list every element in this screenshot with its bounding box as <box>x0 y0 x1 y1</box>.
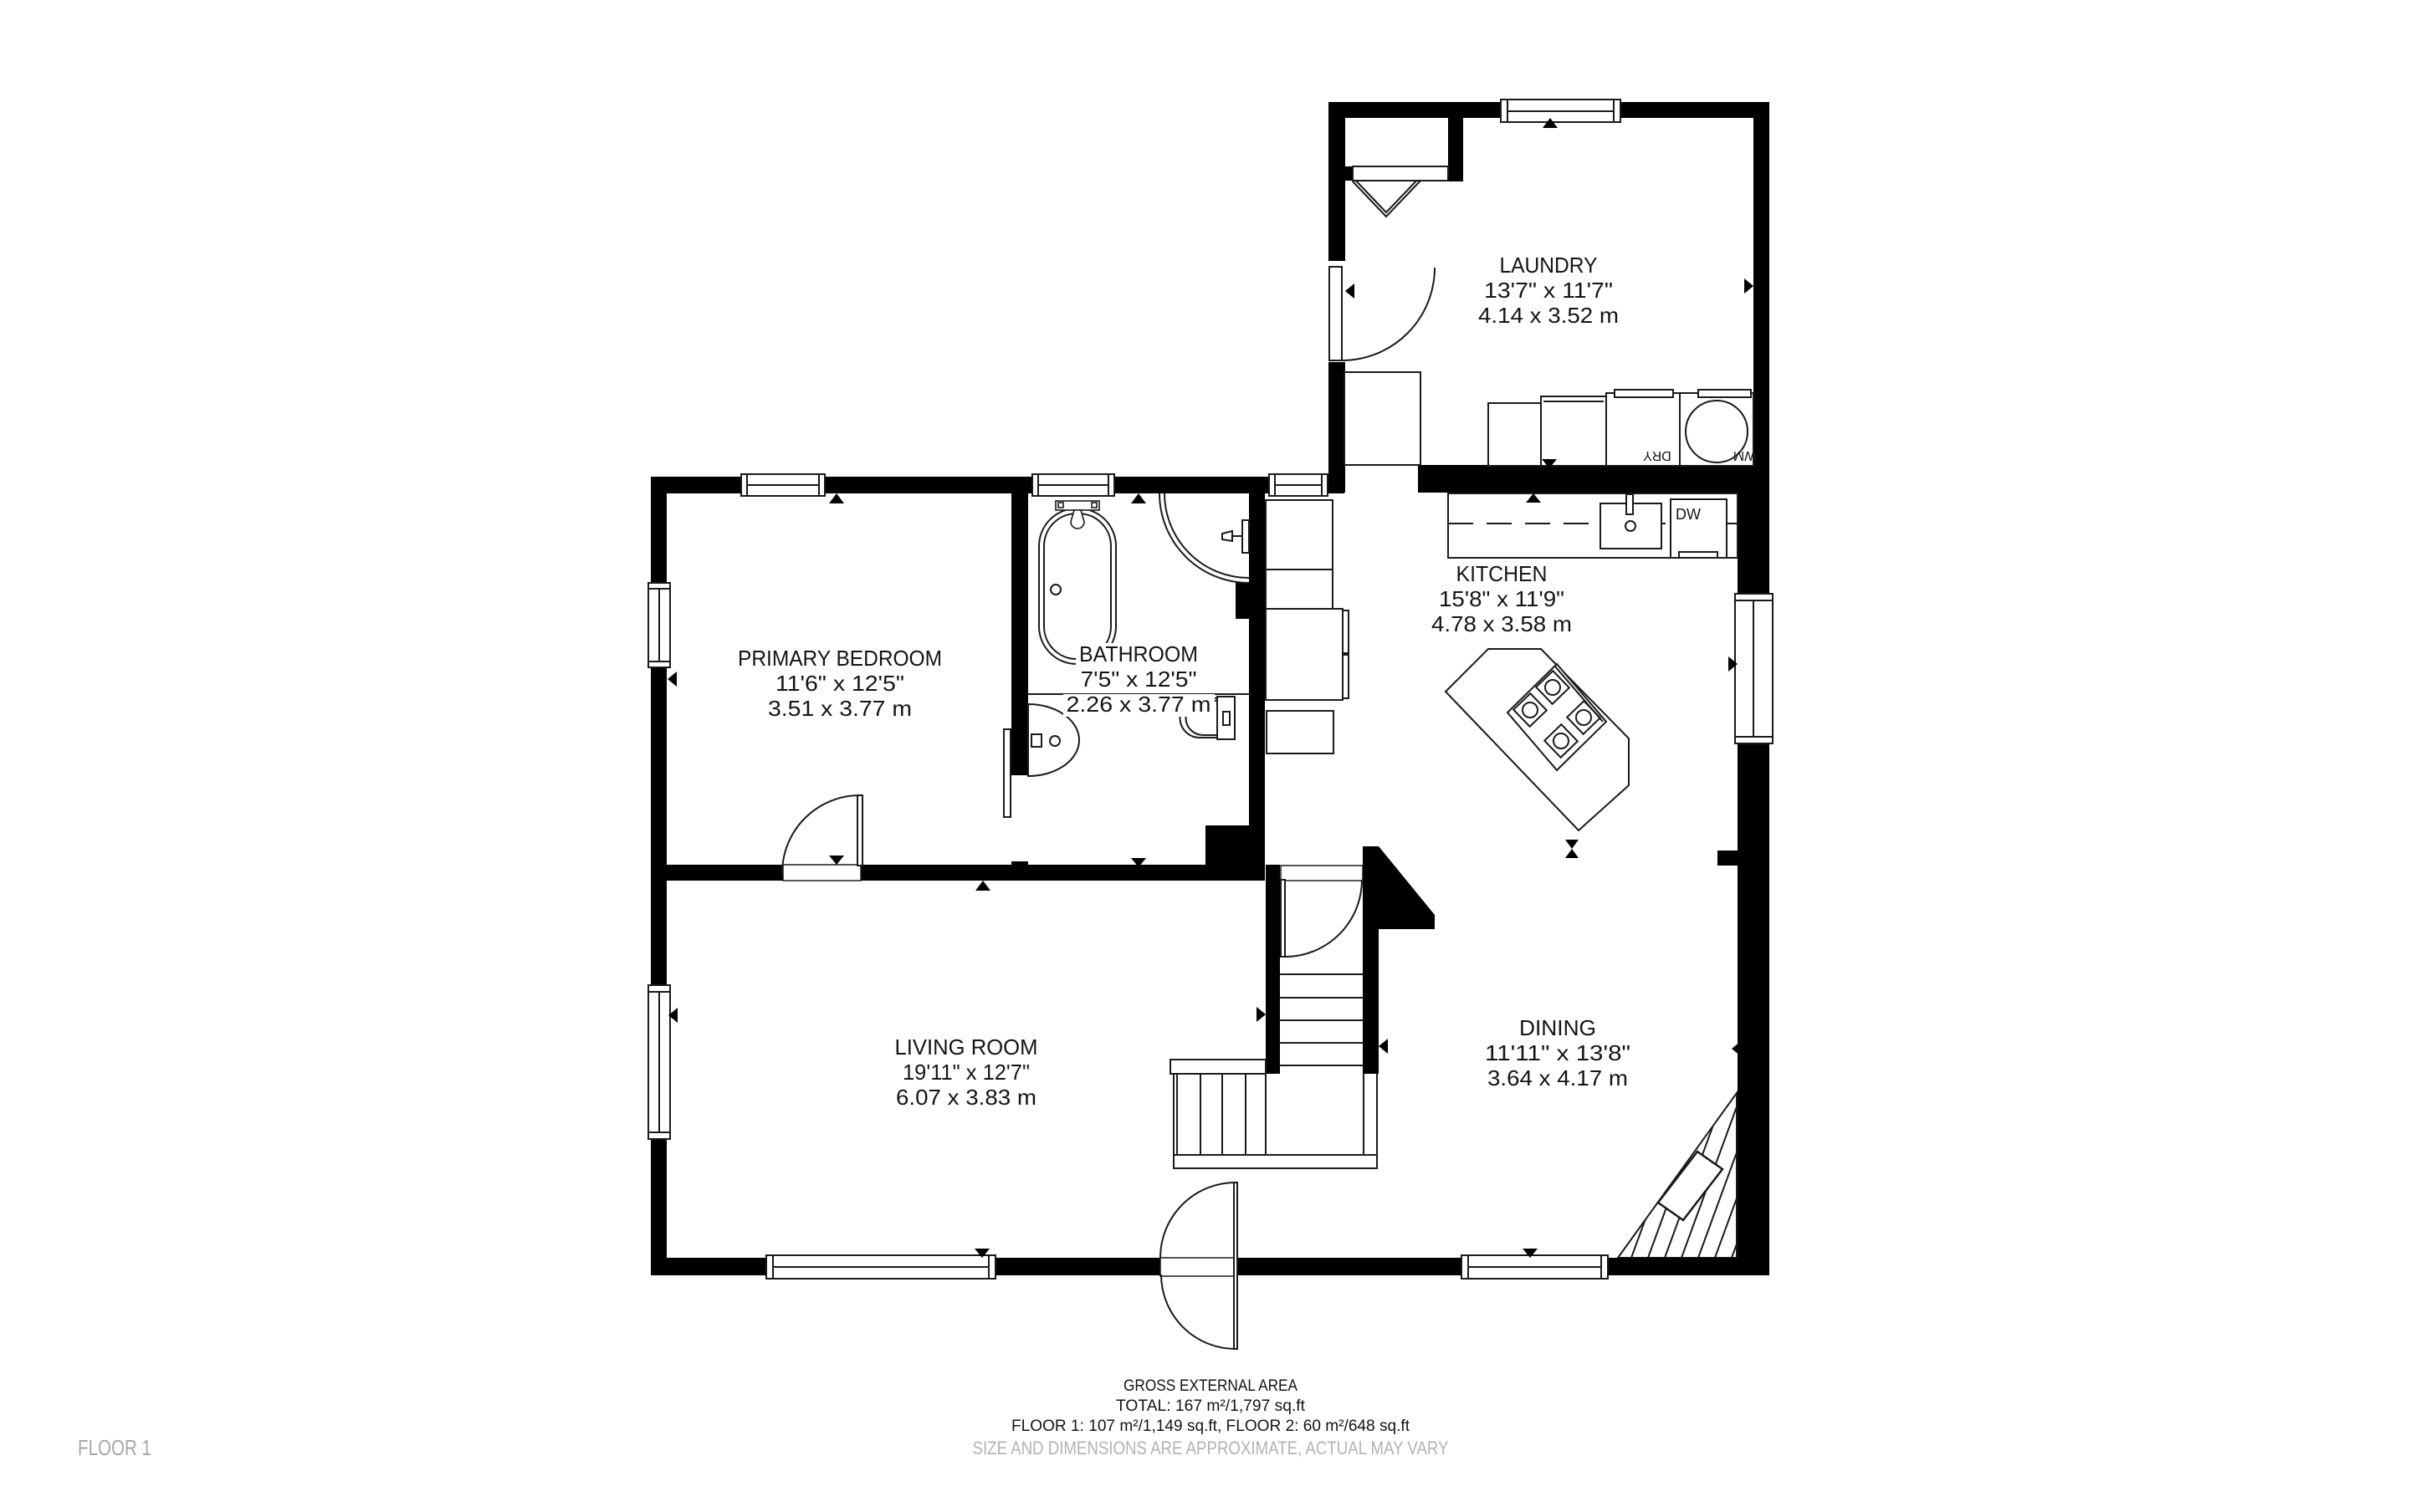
svg-text:DINING: DINING <box>1519 1015 1596 1040</box>
svg-text:7'5" x 12'5": 7'5" x 12'5" <box>1081 667 1197 692</box>
svg-text:GROSS EXTERNAL AREA: GROSS EXTERNAL AREA <box>1123 1377 1298 1395</box>
svg-text:FLOOR 1: 107 m²/1,149 sq.ft, F: FLOOR 1: 107 m²/1,149 sq.ft, FLOOR 2: 60… <box>1011 1417 1410 1435</box>
svg-text:FLOOR 1: FLOOR 1 <box>78 1435 151 1460</box>
svg-text:WM: WM <box>1733 448 1757 462</box>
svg-text:LIVING ROOM: LIVING ROOM <box>895 1034 1038 1060</box>
svg-text:4.14 x 3.52 m: 4.14 x 3.52 m <box>1478 303 1619 328</box>
svg-text:19'11" x 12'7": 19'11" x 12'7" <box>903 1060 1030 1085</box>
svg-text:3.51 x 3.77 m: 3.51 x 3.77 m <box>768 696 912 721</box>
svg-text:DW: DW <box>1676 506 1701 523</box>
svg-text:KITCHEN: KITCHEN <box>1456 561 1548 586</box>
svg-text:4.78 x 3.58 m: 4.78 x 3.58 m <box>1431 611 1572 636</box>
svg-text:11'11" x 13'8": 11'11" x 13'8" <box>1485 1040 1630 1065</box>
svg-text:DRY: DRY <box>1643 448 1671 462</box>
svg-text:LAUNDRY: LAUNDRY <box>1500 253 1598 278</box>
svg-text:6.07 x 3.83 m: 6.07 x 3.83 m <box>896 1085 1036 1110</box>
svg-text:11'6" x 12'5": 11'6" x 12'5" <box>775 671 904 696</box>
svg-text:PRIMARY BEDROOM: PRIMARY BEDROOM <box>738 646 942 671</box>
svg-text:BATHROOM: BATHROOM <box>1079 641 1198 667</box>
svg-text:3.64 x 4.17 m: 3.64 x 4.17 m <box>1487 1065 1628 1091</box>
svg-text:15'8" x 11'9": 15'8" x 11'9" <box>1439 586 1564 611</box>
svg-text:2.26 x 3.77 m: 2.26 x 3.77 m <box>1067 692 1211 717</box>
svg-text:TOTAL: 167 m²/1,797 sq.ft: TOTAL: 167 m²/1,797 sq.ft <box>1116 1397 1306 1415</box>
svg-text:13'7" x 11'7": 13'7" x 11'7" <box>1484 278 1613 303</box>
svg-text:SIZE AND DIMENSIONS ARE APPROX: SIZE AND DIMENSIONS ARE APPROXIMATE, ACT… <box>973 1438 1449 1458</box>
